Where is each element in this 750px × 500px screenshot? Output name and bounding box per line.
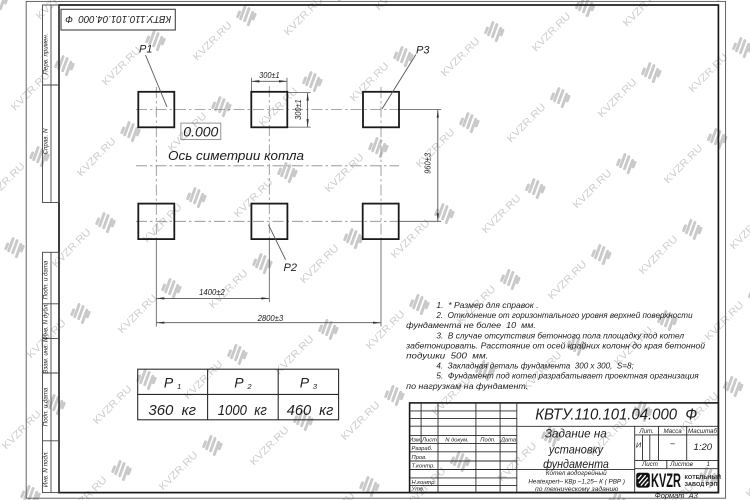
- svg-text:Перв. примен.: Перв. примен.: [43, 33, 50, 74]
- svg-text:Задание на: Задание на: [545, 429, 607, 441]
- svg-text:ЗАВОД РЭП: ЗАВОД РЭП: [685, 482, 718, 488]
- svg-text:0.000: 0.000: [183, 124, 218, 140]
- svg-text:Взам. инв. N: Взам. инв. N: [43, 337, 50, 374]
- svg-text:5. Фундамент под котел разраб: 5. Фундамент под котел разрабатывает про…: [436, 371, 699, 381]
- svg-text:Изм.: Изм.: [409, 437, 421, 443]
- svg-text:360 кг: 360 кг: [148, 402, 196, 419]
- svg-text:Масштаб: Масштаб: [688, 428, 717, 435]
- svg-text:установку: установку: [548, 445, 604, 457]
- svg-text:Лист: Лист: [421, 437, 437, 443]
- svg-text:Т.контр.: Т.контр.: [412, 464, 435, 470]
- svg-text:KVZR: KVZR: [651, 471, 681, 492]
- svg-text:И: И: [636, 441, 642, 450]
- svg-text:по техническому заданию: по техническому заданию: [535, 485, 618, 493]
- svg-text:Пров.: Пров.: [412, 455, 427, 461]
- svg-text:Инв. N подл.: Инв. N подл.: [43, 451, 50, 487]
- svg-text:1:20: 1:20: [694, 442, 713, 453]
- svg-text:300±1: 300±1: [259, 70, 280, 80]
- svg-text:Инв. N дубл.: Инв. N дубл.: [43, 303, 50, 339]
- svg-text:Дата: Дата: [500, 437, 517, 443]
- svg-text:Ось симетрии котла: Ось симетрии котла: [168, 148, 304, 163]
- svg-text:фундамента: фундамента: [543, 459, 609, 471]
- svg-text:Справ. N: Справ. N: [43, 128, 50, 154]
- svg-text:КВТУ.110.101.04.000 Ф: КВТУ.110.101.04.000 Ф: [535, 407, 697, 424]
- svg-text:2. Отклонение от горизонтальн: 2. Отклонение от горизонтального уровня …: [435, 310, 693, 320]
- svg-text:фундамента не более 10 мм.: фундамента не более 10 мм.: [406, 320, 536, 330]
- svg-text:Утв.: Утв.: [411, 486, 425, 492]
- svg-text:1: 1: [707, 461, 710, 468]
- svg-text:Лит.: Лит.: [638, 428, 654, 435]
- svg-text:забетонировать. Расстояние от: забетонировать. Расстояние от осей крайн…: [405, 340, 705, 350]
- svg-text:1. * Размер для справок .: 1. * Размер для справок .: [436, 300, 538, 310]
- svg-text:Р2: Р2: [284, 262, 297, 274]
- svg-text:–: –: [669, 439, 675, 448]
- svg-text:300±1: 300±1: [293, 99, 303, 120]
- svg-text:460 кг: 460 кг: [287, 402, 334, 419]
- svg-text:Котел водогрейный: Котел водогрейный: [546, 469, 607, 477]
- svg-text:Подп. и дата: Подп. и дата: [43, 387, 50, 426]
- svg-text:N докум.: N докум.: [445, 437, 468, 443]
- svg-text:Формат А3: Формат А3: [655, 491, 699, 500]
- svg-text:960±3: 960±3: [423, 153, 433, 174]
- svg-text:КОТЕЛЬНЫЙ: КОТЕЛЬНЫЙ: [685, 473, 721, 481]
- svg-text:КВТУ.110.101.04.000 Ф: КВТУ.110.101.04.000 Ф: [65, 13, 171, 25]
- svg-text:подушки 500 мм.: подушки 500 мм.: [406, 351, 488, 361]
- svg-text:по нагрузкам на фундамент.: по нагрузкам на фундамент.: [406, 381, 528, 391]
- svg-text:3. В случае отсутствия бетонн: 3. В случае отсутствия бетонного пола пл…: [436, 330, 684, 340]
- svg-text:2800±3: 2800±3: [257, 313, 284, 323]
- svg-text:Разраб.: Разраб.: [412, 446, 433, 452]
- svg-text:Н.контр.: Н.контр.: [412, 480, 437, 486]
- svg-text:Р3: Р3: [416, 45, 430, 57]
- svg-text:Лист: Лист: [641, 461, 658, 468]
- svg-text:Подп.: Подп.: [480, 437, 495, 443]
- svg-text:Масса: Масса: [663, 428, 682, 435]
- svg-text:Heatexpert– КВр –1,25– К ( РВР: Heatexpert– КВр –1,25– К ( РВР ): [528, 479, 625, 486]
- svg-text:Р1: Р1: [139, 44, 152, 56]
- svg-text:1000 кг: 1000 кг: [218, 402, 268, 419]
- svg-text:Листов: Листов: [669, 461, 693, 468]
- svg-text:Подп. и дата: Подп. и дата: [43, 260, 50, 299]
- svg-text:4. Закладная деталь фундамент: 4. Закладная деталь фундамента 300 x 300…: [436, 361, 634, 371]
- svg-text:1400±2: 1400±2: [199, 287, 225, 297]
